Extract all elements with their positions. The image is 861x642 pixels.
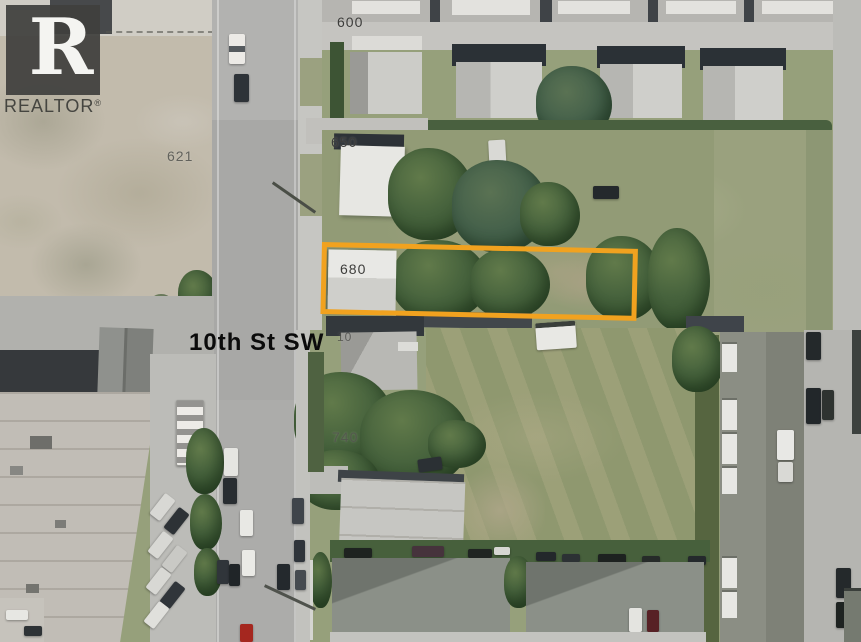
- roof-seam: [430, 0, 440, 22]
- roof-vent: [26, 584, 39, 593]
- car: [629, 608, 642, 632]
- realtor-wordmark-text: REALTOR: [4, 96, 94, 116]
- roof-gable: [558, 1, 630, 14]
- roof-dormer: [722, 466, 737, 494]
- road-edge-line: [217, 0, 219, 642]
- roof-gable: [352, 36, 422, 50]
- car: [822, 390, 834, 420]
- car: [593, 186, 619, 199]
- house-number-680: 680: [340, 261, 366, 277]
- townhouse-roof: [332, 558, 510, 642]
- car: [229, 564, 240, 586]
- realtor-r-icon: R: [29, 9, 94, 87]
- roof-gable: [352, 1, 420, 14]
- hedge: [308, 352, 324, 472]
- car: [6, 610, 28, 620]
- house-number-740: 740: [332, 429, 358, 445]
- car: [242, 550, 255, 576]
- house-number-621: 621: [167, 148, 193, 164]
- house-roof: [456, 62, 542, 118]
- roof-gable: [666, 1, 736, 14]
- car: [217, 560, 229, 584]
- tree: [672, 326, 724, 392]
- tree: [310, 552, 332, 608]
- car: [295, 570, 306, 590]
- hedge: [806, 130, 832, 330]
- roof-vent: [55, 520, 66, 528]
- car: [223, 478, 237, 504]
- car: [468, 549, 492, 558]
- roof-vent: [10, 466, 23, 475]
- house-roof: [600, 64, 682, 118]
- car: [494, 547, 510, 555]
- van: [412, 546, 444, 557]
- roof-dormer: [722, 398, 737, 430]
- building-edge: [852, 330, 861, 434]
- registered-trademark-symbol: ®: [94, 98, 102, 108]
- van-windshield: [229, 46, 245, 52]
- street-label: 10th St SW: [189, 329, 324, 357]
- car-red: [240, 624, 253, 642]
- car: [292, 498, 304, 524]
- roof-seam: [648, 0, 658, 22]
- truck: [777, 430, 794, 460]
- road-strip-east: [833, 0, 861, 330]
- building-roof: [0, 350, 110, 394]
- car: [806, 332, 821, 360]
- realtor-logo-square: R: [6, 5, 100, 95]
- roof-seam: [744, 0, 754, 22]
- lot-boundary-dashes: [106, 31, 214, 33]
- hedge: [330, 42, 344, 128]
- truck: [778, 462, 793, 482]
- house-roof: [350, 52, 422, 114]
- roof-dormer: [722, 432, 737, 464]
- property-highlight-rectangle: [320, 242, 637, 321]
- roof-dormer: [722, 342, 737, 372]
- trailer: [535, 321, 577, 351]
- building-roof: [844, 588, 861, 642]
- driveway: [330, 632, 706, 642]
- aerial-map: 600 621 650 680 10 740 10th St SW R REAL…: [0, 0, 861, 642]
- car: [277, 564, 290, 590]
- car: [647, 610, 659, 632]
- realtor-wordmark: REALTOR®: [4, 96, 102, 117]
- tree: [190, 494, 222, 550]
- roof-gable: [452, 0, 530, 15]
- tree: [186, 428, 224, 494]
- car: [294, 540, 305, 562]
- house-number-7x0-partial: 10: [337, 330, 352, 344]
- fence-line: [310, 560, 313, 640]
- car: [344, 548, 372, 558]
- roof-dormer: [722, 590, 737, 618]
- grass-patch: [300, 58, 322, 106]
- car: [234, 74, 249, 102]
- car: [536, 552, 556, 561]
- roof-seam: [540, 0, 552, 22]
- house-number-650: 650: [331, 134, 357, 150]
- realtor-logo: R REALTOR®: [4, 2, 122, 120]
- townhouse-roof: [526, 562, 704, 642]
- house-number-600: 600: [337, 14, 363, 30]
- house-roof: [703, 66, 783, 120]
- car: [24, 626, 42, 636]
- roof-gable: [762, 1, 834, 14]
- tree: [648, 228, 710, 330]
- car: [562, 554, 580, 562]
- roof-detail: [398, 342, 418, 351]
- roof-dormer: [722, 556, 737, 588]
- pickup: [224, 448, 238, 476]
- roof-vent: [30, 436, 52, 449]
- car: [240, 510, 253, 536]
- tree: [520, 182, 580, 246]
- road-vertical: [212, 0, 306, 642]
- car: [806, 388, 821, 424]
